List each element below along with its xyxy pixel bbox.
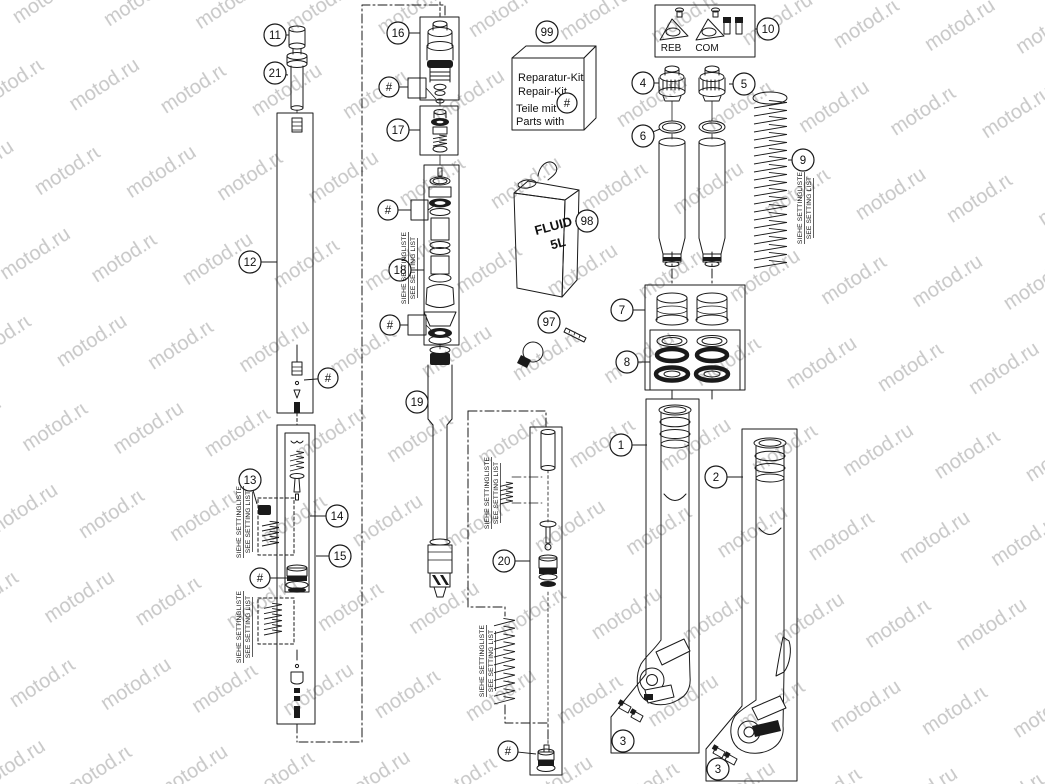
setting-note-en: SEE SETTING LIST [488, 630, 495, 693]
callout-label-20: 20 [498, 556, 511, 568]
setting-note-en: SEE SETTING LIST [806, 177, 813, 240]
setting-note-1: SIEHE SETTINGLISTESEE SETTING LIST [401, 232, 418, 305]
callout-label-3-right: 3 [715, 764, 721, 776]
callout-label-4: 4 [640, 78, 647, 90]
repair-kit-line3: Teile mit [516, 103, 556, 115]
callout-97: 97 [538, 311, 560, 333]
callout-label-13: 13 [244, 475, 257, 487]
setting-note-de: SIEHE SETTINGLISTE [401, 232, 408, 305]
callout-3-right: 3 [707, 758, 729, 780]
callout-label-8: 8 [624, 357, 630, 369]
callout-label-hash-16: # [386, 82, 393, 94]
callout-label-15: 15 [334, 551, 347, 563]
callout-label-7: 7 [619, 305, 625, 317]
callout-label-hash-12: # [325, 373, 332, 385]
setting-note-de: SIEHE SETTINGLISTE [484, 457, 491, 530]
callout-label-2: 2 [713, 472, 719, 484]
setting-note-4: SIEHE SETTINGLISTESEE SETTING LIST [484, 457, 501, 530]
repair-kit-line1: Reparatur-Kit [518, 72, 583, 84]
setting-note-en: SEE SETTING LIST [245, 596, 252, 659]
callout-3-left: 3 [612, 730, 634, 752]
callout-98: 98 [575, 210, 598, 232]
callout-19: 19 [406, 391, 428, 413]
callout-label-99: 99 [541, 27, 554, 39]
setting-note-en: SEE SETTING LIST [493, 462, 500, 525]
callout-99: 99 [536, 21, 558, 43]
setting-note-en: SEE SETTING LIST [410, 237, 417, 300]
setting-note-de: SIEHE SETTINGLISTE [236, 486, 243, 559]
callout-label-hash-20: # [505, 746, 512, 758]
callout-label-19: 19 [411, 397, 424, 409]
setting-note-2: SIEHE SETTINGLISTESEE SETTING LIST [236, 486, 253, 559]
callout-label-16: 16 [392, 28, 405, 40]
repair-kit-line4: Parts with [516, 116, 564, 128]
callout-hash-kit: # [557, 93, 577, 113]
callout-label-1: 1 [618, 440, 624, 452]
setting-note-de: SIEHE SETTINGLISTE [797, 172, 804, 245]
callout-label-hash-15: # [257, 573, 264, 585]
compression-label: COM [695, 43, 718, 54]
callout-label-12: 12 [244, 257, 257, 269]
callout-label-98: 98 [581, 216, 594, 228]
callout-label-hash-kit: # [564, 98, 571, 110]
rebound-label: REB [661, 43, 682, 54]
setting-note-de: SIEHE SETTINGLISTE [479, 625, 486, 698]
repair-kit-box: Reparatur-Kit Repair-Kit Teile mit Parts… [512, 46, 596, 130]
callout-label-14: 14 [331, 511, 344, 523]
setting-note-3: SIEHE SETTINGLISTESEE SETTING LIST [236, 591, 253, 664]
callout-label-5: 5 [741, 79, 747, 91]
setting-note-de: SIEHE SETTINGLISTE [236, 591, 243, 664]
callout-label-11: 11 [269, 30, 281, 42]
callout-label-6: 6 [640, 131, 646, 143]
setting-note-en: SEE SETTING LIST [245, 491, 252, 554]
callout-label-17: 17 [392, 125, 405, 137]
setting-note-6: SIEHE SETTINGLISTESEE SETTING LIST [797, 172, 814, 245]
setting-note-5: SIEHE SETTINGLISTESEE SETTING LIST [479, 625, 496, 698]
callout-label-hash-18a: # [385, 205, 392, 217]
callout-label-hash-18b: # [387, 320, 394, 332]
callout-label-10: 10 [762, 24, 775, 36]
callout-label-3-left: 3 [620, 736, 626, 748]
callout-label-97: 97 [543, 317, 556, 329]
callout-label-9: 9 [800, 155, 806, 167]
exploded-parts-diagram: motod.ru motod.ru [0, 0, 1045, 784]
callout-label-21: 21 [269, 68, 282, 80]
fork-parts-diagram-page: motod.ru motod.ru [0, 0, 1045, 784]
